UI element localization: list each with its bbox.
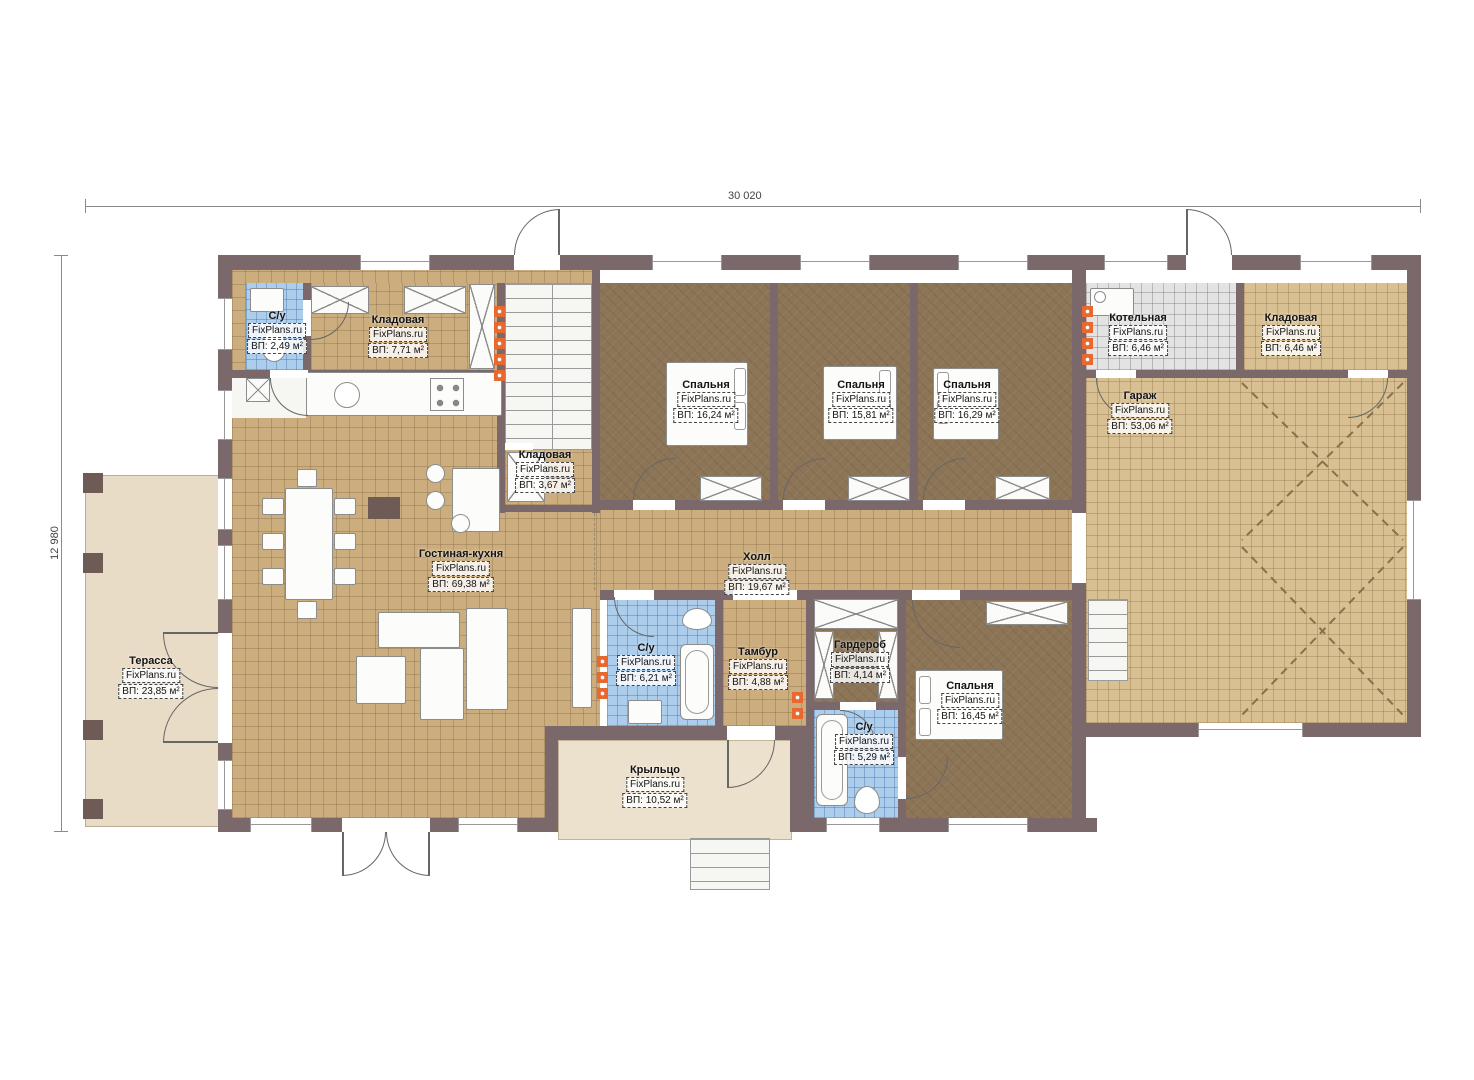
window <box>218 390 232 440</box>
dimension-label-width: 30 020 <box>728 190 762 202</box>
radiator <box>494 306 505 381</box>
washing-machine <box>246 378 270 402</box>
room-area: ВП: 7,71 м² <box>368 343 428 358</box>
room-label-terrace: Терасса FixPlans.ru ВП: 23,85 м² <box>118 655 183 699</box>
watermark: FixPlans.ru <box>1111 403 1169 418</box>
room-name: Крыльцо <box>630 764 680 776</box>
room-label-bedroom-3: Спальня FixPlans.ru ВП: 16,29 м² <box>934 379 999 423</box>
room-area: ВП: 2,49 м² <box>247 339 307 354</box>
watermark: FixPlans.ru <box>1262 325 1320 340</box>
room-area: ВП: 6,21 м² <box>616 671 676 686</box>
room-label-bathroom-3: С/у FixPlans.ru ВП: 5,29 м² <box>834 721 894 765</box>
toilet <box>682 608 712 630</box>
terrace-post <box>83 553 103 573</box>
watermark: FixPlans.ru <box>248 323 306 338</box>
room-name: Холл <box>743 551 771 563</box>
sink <box>250 288 284 312</box>
door-opening <box>514 255 560 270</box>
room-label-bathroom-2: С/у FixPlans.ru ВП: 6,21 м² <box>616 642 676 686</box>
door-opening <box>923 500 965 510</box>
dimension-label-height: 12 980 <box>49 526 61 560</box>
door-opening <box>898 757 906 799</box>
hall-garage-opening <box>1072 513 1086 583</box>
door-arc <box>514 209 560 255</box>
door-leaf <box>428 832 430 876</box>
door-opening <box>783 500 825 510</box>
room-area: ВП: 16,29 м² <box>934 408 999 423</box>
room-area: ВП: 4,88 м² <box>728 675 788 690</box>
garage-steps <box>1088 599 1128 681</box>
watermark: FixPlans.ru <box>626 777 684 792</box>
watermark: FixPlans.ru <box>835 734 893 749</box>
dimension-tick <box>54 831 68 832</box>
room-name: Кладовая <box>519 449 572 461</box>
wardrobe <box>700 476 762 501</box>
living-hall-boundary <box>594 513 595 590</box>
door-leaf <box>558 209 560 255</box>
room-area: ВП: 4,14 м² <box>830 668 890 683</box>
wall <box>497 505 600 512</box>
chair <box>334 533 356 550</box>
watermark: FixPlans.ru <box>1109 325 1167 340</box>
door-opening <box>1096 370 1136 378</box>
room-label-hall: Холл FixPlans.ru ВП: 19,67 м² <box>724 551 789 595</box>
terrace-post <box>83 720 103 740</box>
wall <box>790 726 806 832</box>
window <box>958 255 1028 270</box>
room-name: Спальня <box>682 379 730 391</box>
room-label-bathroom-1: С/у FixPlans.ru ВП: 2,49 м² <box>247 310 307 354</box>
bathtub <box>680 644 714 720</box>
room-name: Гостиная-кухня <box>419 548 503 560</box>
window <box>218 478 232 530</box>
chair <box>262 533 284 550</box>
room-area: ВП: 69,38 м² <box>428 577 493 592</box>
stair-divider <box>552 284 553 449</box>
sink <box>628 700 662 724</box>
radiator <box>1082 306 1093 365</box>
window <box>458 818 518 832</box>
wall <box>715 597 723 726</box>
watermark: FixPlans.ru <box>728 564 786 579</box>
room-name: Тамбур <box>738 646 778 658</box>
dimension-line-top <box>85 206 1421 207</box>
fireplace <box>368 497 400 519</box>
dimension-tick <box>54 255 68 256</box>
bar-stool <box>426 464 445 483</box>
window <box>652 255 722 270</box>
pillow <box>919 708 931 736</box>
wall <box>910 283 918 505</box>
room-name: Котельная <box>1109 312 1167 324</box>
room-label-bedroom-2: Спальня FixPlans.ru ВП: 15,81 м² <box>828 379 893 423</box>
room-label-bedroom-1: Спальня FixPlans.ru ВП: 16,24 м² <box>673 379 738 423</box>
dining-table <box>285 488 333 600</box>
room-area: ВП: 3,67 м² <box>515 478 575 493</box>
garage-gate <box>1198 723 1303 737</box>
window <box>360 255 430 270</box>
sofa <box>466 608 508 710</box>
window <box>1300 255 1372 270</box>
watermark: FixPlans.ru <box>677 392 735 407</box>
wall <box>770 283 778 505</box>
door-opening <box>1186 255 1232 270</box>
room-name: С/у <box>855 721 872 733</box>
dimension-tick <box>1420 199 1421 213</box>
watermark: FixPlans.ru <box>617 655 675 670</box>
room-name: Гараж <box>1124 390 1157 402</box>
room-label-wardrobe-room: Гардероб FixPlans.ru ВП: 4,14 м² <box>830 639 890 683</box>
window <box>948 818 1028 832</box>
chair <box>297 469 317 487</box>
staircase-main <box>505 283 592 450</box>
door-leaf <box>163 632 218 634</box>
door-opening <box>727 726 775 740</box>
room-area: ВП: 19,67 м² <box>724 580 789 595</box>
room-area: ВП: 53,06 м² <box>1107 419 1172 434</box>
door-opening <box>1348 370 1388 378</box>
sofa <box>420 648 464 720</box>
watermark: FixPlans.ru <box>941 693 999 708</box>
door-arc <box>342 832 386 876</box>
room-label-bedroom-4: Спальня FixPlans.ru ВП: 16,45 м² <box>937 680 1002 724</box>
room-area: ВП: 23,85 м² <box>118 684 183 699</box>
kitchen-sink <box>334 382 360 408</box>
room-name: Спальня <box>837 379 885 391</box>
room-area: ВП: 5,29 м² <box>834 750 894 765</box>
room-name: Терасса <box>129 655 173 667</box>
window <box>218 760 232 810</box>
toilet <box>854 786 880 814</box>
room-label-garage: Гараж FixPlans.ru ВП: 53,06 м² <box>1107 390 1172 434</box>
room-label-boiler-room: Котельная FixPlans.ru ВП: 6,46 м² <box>1108 312 1168 356</box>
radiator <box>792 692 803 719</box>
door-leaf <box>163 741 218 743</box>
pillow <box>919 676 931 704</box>
boiler-dial <box>1094 291 1106 303</box>
wardrobe <box>404 286 466 314</box>
room-name: Гардероб <box>834 639 886 651</box>
room-name: Кладовая <box>1265 312 1318 324</box>
terrace-post <box>83 799 103 819</box>
window <box>826 818 880 832</box>
window <box>218 545 232 600</box>
room-area: ВП: 16,24 м² <box>673 408 738 423</box>
room-name: Спальня <box>946 680 994 692</box>
window <box>250 818 312 832</box>
room-name: С/у <box>268 310 285 322</box>
dimension-tick <box>85 199 86 213</box>
room-label-storage-1: Кладовая FixPlans.ru ВП: 7,71 м² <box>368 314 428 358</box>
watermark: FixPlans.ru <box>432 561 490 576</box>
room-name: С/у <box>637 642 654 654</box>
door-leaf <box>342 832 344 876</box>
garage-gate-side <box>1407 500 1421 600</box>
floor-hall <box>600 505 1072 597</box>
watermark: FixPlans.ru <box>516 462 574 477</box>
sofa <box>378 612 460 648</box>
watermark: FixPlans.ru <box>369 327 427 342</box>
stove <box>430 378 464 411</box>
room-name: Спальня <box>943 379 991 391</box>
wall <box>545 740 558 832</box>
watermark: FixPlans.ru <box>729 659 787 674</box>
bar-stool <box>451 514 470 533</box>
door-opening <box>218 633 232 743</box>
room-area: ВП: 10,52 м² <box>622 793 687 808</box>
bar-stool <box>426 491 445 510</box>
wall <box>1236 283 1244 370</box>
wardrobe <box>814 599 898 629</box>
door-opening <box>912 590 960 600</box>
radiator <box>597 656 608 699</box>
watermark: FixPlans.ru <box>831 652 889 667</box>
room-area: ВП: 6,46 м² <box>1108 341 1168 356</box>
wardrobe <box>995 476 1050 500</box>
door-leaf <box>1186 209 1188 255</box>
door-arc <box>386 832 430 876</box>
sideboard <box>572 608 592 708</box>
room-label-vestibule: Тамбур FixPlans.ru ВП: 4,88 м² <box>728 646 788 690</box>
room-area: ВП: 15,81 м² <box>828 408 893 423</box>
door-opening <box>270 370 308 378</box>
window <box>1104 255 1168 270</box>
door-opening <box>633 500 675 510</box>
room-area: ВП: 16,45 м² <box>937 709 1002 724</box>
room-area: ВП: 6,46 м² <box>1261 341 1321 356</box>
watermark: FixPlans.ru <box>938 392 996 407</box>
room-label-living-kitchen: Гостиная-кухня FixPlans.ru ВП: 69,38 м² <box>419 548 503 592</box>
room-label-storage-2: Кладовая FixPlans.ru ВП: 3,67 м² <box>515 449 575 493</box>
porch-steps <box>690 838 770 890</box>
room-label-storage-3: Кладовая FixPlans.ru ВП: 6,46 м² <box>1261 312 1321 356</box>
room-name: Кладовая <box>372 314 425 326</box>
chair <box>334 568 356 585</box>
dimension-line-left <box>61 255 62 832</box>
wardrobe <box>848 476 910 501</box>
watermark: FixPlans.ru <box>122 668 180 683</box>
coffee-table <box>356 656 406 704</box>
terrace-post <box>83 473 103 493</box>
door-opening <box>840 702 876 710</box>
wall <box>592 255 600 513</box>
wall <box>1407 255 1421 737</box>
chair <box>262 568 284 585</box>
window <box>218 298 232 350</box>
window <box>800 255 870 270</box>
wardrobe <box>469 284 495 369</box>
chair <box>262 498 284 515</box>
room-label-porch: Крыльцо FixPlans.ru ВП: 10,52 м² <box>622 764 687 808</box>
door-opening <box>342 818 430 832</box>
wardrobe <box>986 601 1068 625</box>
chair <box>297 601 317 619</box>
floor-plan: 30 020 12 980 <box>0 0 1474 1080</box>
door-leaf <box>727 740 729 788</box>
door-arc <box>1186 209 1232 255</box>
garage-gate-dashes <box>1240 375 1405 720</box>
watermark: FixPlans.ru <box>832 392 890 407</box>
chair <box>334 498 356 515</box>
